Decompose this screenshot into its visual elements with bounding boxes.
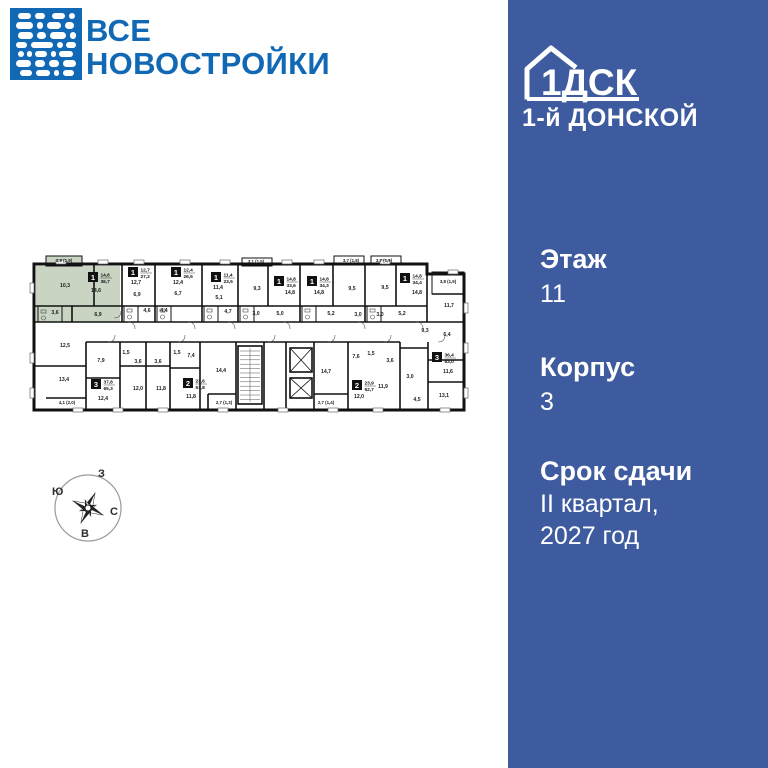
project-name: 1-й ДОНСКОЙ [522, 104, 698, 133]
svg-text:34,4: 34,4 [413, 280, 423, 286]
room-area-label: 9,5 [348, 286, 355, 292]
room-area-label: 4,1 (2,0) [59, 400, 76, 405]
room-area-label: 3,6 [51, 310, 58, 316]
svg-text:23,6: 23,6 [196, 379, 206, 385]
room-area-label: 12,5 [60, 343, 70, 349]
svg-text:3: 3 [435, 353, 439, 362]
room-area-label: 5,2 [327, 311, 334, 317]
svg-text:1: 1 [214, 273, 218, 282]
room-area-label: 12,4 [173, 280, 183, 286]
room-area-label: 6,9 [133, 292, 140, 298]
svg-text:23,9: 23,9 [365, 381, 375, 387]
unit-badge: 114,833,6 [274, 276, 298, 289]
room-area-label: 10,3 [60, 283, 70, 289]
room-area-label: 9,5 [381, 285, 388, 291]
svg-text:23,5: 23,5 [224, 279, 234, 285]
brand-name-line2: НОВОСТРОЙКИ [86, 47, 330, 80]
building-value: 3 [540, 386, 554, 418]
svg-text:1: 1 [403, 274, 407, 283]
brand-logo-icon [10, 8, 82, 80]
room-area-label: 14,8 [412, 290, 422, 296]
compass-east-label: В [81, 528, 89, 540]
room-area-label: 11,8 [156, 386, 166, 392]
svg-text:2: 2 [186, 379, 190, 388]
room-area-label: 5,0 [276, 311, 283, 317]
room-area-label: 6,4 [443, 332, 450, 338]
room-area-label: 14,6 [91, 288, 101, 294]
svg-text:52,7: 52,7 [365, 387, 375, 393]
unit-badge: 114,834,3 [307, 276, 331, 289]
room-area-label: 4,7 [224, 309, 231, 315]
unit-badge: 337,865,3 [91, 379, 115, 392]
floor-plan: 3,9 (1,9)10,314,63,66,912,76,94,612,46,7… [28, 248, 498, 423]
brand-name: ВСЕ НОВОСТРОЙКИ [86, 14, 330, 80]
floor-plan-drawing: 3,9 (1,9)10,314,63,66,912,76,94,612,46,7… [28, 248, 498, 423]
unit-badge: 111,423,5 [211, 272, 235, 285]
svg-text:1: 1 [131, 268, 135, 277]
brand-logo [10, 8, 82, 80]
svg-text:1: 1 [91, 273, 95, 282]
room-area-label: 3,6 [134, 359, 141, 365]
room-area-label: 14,8 [314, 290, 324, 296]
room-area-label: 14,7 [321, 369, 331, 375]
room-area-label: 1,5 [173, 350, 180, 356]
room-area-label: 7,9 [97, 358, 104, 364]
room-area-label: 13,1 [439, 393, 449, 399]
room-area-label: 9,3 [253, 286, 260, 292]
info-sidebar: 1ДСК 1-й ДОНСКОЙ Этаж 11 Корпус 3 Срок с… [508, 0, 768, 768]
svg-text:1: 1 [277, 277, 281, 286]
unit-badge: 223,952,7 [352, 380, 376, 393]
svg-text:34,3: 34,3 [320, 283, 330, 289]
room-area-label: 1,5 [122, 350, 129, 356]
floor-value: 11 [540, 278, 566, 310]
building-label: Корпус [540, 352, 635, 383]
svg-text:12,4: 12,4 [184, 268, 194, 274]
svg-text:33,6: 33,6 [287, 283, 297, 289]
compass-south-label: Ю [52, 486, 63, 498]
svg-text:37,8: 37,8 [104, 380, 114, 386]
room-area-label: 13,4 [59, 377, 69, 383]
unit-badge: 223,651,8 [183, 378, 207, 391]
room-area-label: 14,4 [216, 368, 226, 374]
svg-text:14,8: 14,8 [320, 277, 330, 283]
svg-text:27,2: 27,2 [141, 274, 151, 280]
svg-text:51,8: 51,8 [196, 385, 206, 391]
svg-text:36,4: 36,4 [445, 353, 455, 359]
room-area-label: 3,8 (1,9) [440, 279, 457, 284]
svg-text:2: 2 [355, 381, 359, 390]
room-area-label: 5,1 [215, 295, 222, 301]
room-area-label: 12,0 [354, 394, 364, 400]
room-area-label: 11,6 [443, 369, 453, 375]
svg-text:63,0: 63,0 [445, 359, 455, 365]
room-area-label: 2,7 (1,4) [318, 400, 335, 405]
unit-badge: 112,426,5 [171, 267, 195, 280]
developer-logo-text: 1ДСК [541, 62, 638, 103]
svg-text:12,7: 12,7 [141, 268, 151, 274]
room-area-label: 3,0 [406, 374, 413, 380]
svg-text:3: 3 [94, 380, 98, 389]
unit-badge: 112,727,2 [128, 267, 152, 280]
room-area-label: 4,6 [143, 308, 150, 314]
room-area-label: 3,0 [354, 312, 361, 318]
room-area-label: 12,4 [98, 396, 108, 402]
compass-west-label: З [98, 468, 105, 480]
svg-text:14,8: 14,8 [413, 274, 423, 280]
room-area-label: 3,0 [252, 311, 259, 317]
room-area-label: 7,4 [187, 353, 194, 359]
room-area-label: 3,7 (1,9) [376, 258, 393, 263]
room-area-label: 7,6 [352, 354, 359, 360]
real-estate-flyer: { "colors": { "brand_blue": "#1168b5", "… [0, 0, 768, 768]
svg-text:36,7: 36,7 [101, 279, 111, 285]
svg-text:26,5: 26,5 [184, 274, 194, 280]
room-area-label: 11,8 [186, 394, 196, 400]
brand-name-line1: ВСЕ [86, 14, 330, 47]
deadline-value-line1: II квартал, [540, 488, 659, 520]
room-area-label: 11,9 [378, 384, 388, 390]
room-area-label: 3,7 (1,8) [343, 258, 360, 263]
deadline-label: Срок сдачи [540, 456, 692, 487]
room-area-label: 4,4 [160, 308, 167, 314]
compass-rose: З Ю С В [46, 466, 130, 550]
room-area-label: 14,8 [285, 290, 295, 296]
svg-text:14,6: 14,6 [101, 273, 111, 279]
room-area-label: 3,6 [154, 359, 161, 365]
room-area-label: 12,0 [133, 386, 143, 392]
unit-badge: 336,463,0 [432, 352, 456, 365]
room-area-label: 9,3 [421, 328, 428, 334]
room-area-label: 12,7 [131, 280, 141, 286]
room-area-label: 3,9 (1,9) [56, 258, 73, 263]
svg-text:1: 1 [174, 268, 178, 277]
room-area-label: 6,7 [174, 291, 181, 297]
room-area-label: 11,4 [213, 285, 223, 291]
room-area-label: 3,0 [376, 312, 383, 318]
compass-north-label: С [110, 506, 118, 518]
deadline-value-line2: 2027 год [540, 520, 639, 552]
room-area-label: 3,1 (1,5) [248, 259, 265, 264]
unit-badge: 114,834,4 [400, 273, 424, 286]
room-area-label: 3,6 [386, 358, 393, 364]
svg-text:65,3: 65,3 [104, 386, 114, 392]
developer-logo-icon: 1ДСК [520, 40, 750, 104]
room-area-label: 11,7 [444, 303, 454, 309]
room-area-label: 6,9 [94, 312, 101, 318]
room-area-label: 2,7 (1,3) [216, 400, 233, 405]
svg-text:1: 1 [310, 277, 314, 286]
room-area-label: 1,5 [367, 351, 374, 357]
svg-text:14,8: 14,8 [287, 277, 297, 283]
room-area-label: 4,5 [413, 397, 420, 403]
svg-text:11,4: 11,4 [224, 273, 233, 279]
room-area-label: 5,2 [398, 311, 405, 317]
floor-label: Этаж [540, 244, 607, 275]
